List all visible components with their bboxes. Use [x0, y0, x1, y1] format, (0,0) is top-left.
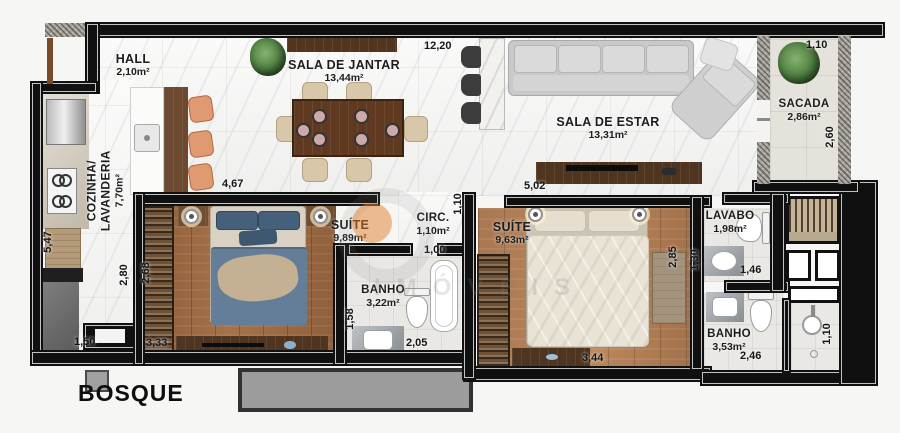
wall-bottom-b	[463, 366, 712, 382]
entrance-door	[47, 38, 53, 84]
floor-plan: IMÓVEIS HALL 2,10m² SALA DE JANTAR 13,44…	[0, 0, 900, 433]
plan-title: BOSQUE	[78, 380, 184, 407]
bar-stool	[187, 129, 214, 158]
shaft-box	[815, 250, 840, 281]
dining-table	[292, 99, 404, 157]
sacada-wall-right	[838, 36, 851, 184]
dim-banho2-bottom: 2,46	[740, 350, 761, 362]
room-label-suite1: SUÍTE 9,89m²	[318, 218, 382, 244]
laundry-counter-dark	[41, 268, 83, 282]
bathtub	[430, 260, 458, 332]
dim-suite1-bottom: 3,33	[146, 337, 167, 349]
toilet-tank	[748, 292, 774, 300]
dim-kitchen-bottom: 1,50	[74, 336, 95, 348]
dining-chair	[404, 116, 428, 142]
dim-kitchen-height: 5,47	[42, 222, 54, 262]
bar-counter-marble	[479, 38, 505, 130]
toilet-tank	[762, 212, 770, 244]
dim-suite1-depth: 2,68	[140, 253, 152, 293]
bar-chair	[461, 46, 481, 68]
dim-kitchen-inner: 2,80	[118, 255, 130, 295]
fridge	[46, 99, 86, 145]
dining-chair	[346, 158, 372, 182]
dim-suite2-bottom: 3,44	[582, 352, 603, 364]
sofa	[508, 40, 694, 96]
wardrobe	[477, 254, 510, 368]
dim-living-top: 12,20	[424, 40, 452, 52]
breakfast-bar	[164, 87, 188, 195]
dim-suite2-top: 5,02	[524, 180, 545, 192]
bar-chair	[461, 74, 481, 96]
wall-sconce	[632, 207, 647, 222]
wall-suite1-top	[133, 192, 380, 206]
dim-circ-width: 1,00	[424, 244, 445, 256]
wall-shower-left	[782, 298, 791, 373]
room-label-sala-de-jantar: SALA DE JANTAR 13,44m²	[286, 58, 402, 84]
room-label-lavabo: LAVABO 1,98m²	[698, 210, 762, 235]
island-sink	[134, 124, 160, 152]
sideboard	[287, 36, 397, 52]
wall-suite2-top	[504, 195, 712, 208]
bar-chair	[461, 102, 481, 124]
double-bed	[210, 206, 306, 324]
exterior-ledge	[238, 368, 473, 412]
dining-chair	[302, 158, 328, 182]
double-bed	[526, 204, 648, 346]
sink-counter	[704, 246, 744, 276]
door-gap	[95, 329, 125, 343]
dim-lavabo-bottom: 1,46	[740, 264, 761, 276]
dim-suite1-top: 4,67	[222, 178, 243, 190]
shower-drain	[810, 350, 818, 358]
shower-head	[802, 315, 822, 335]
duct-box	[788, 286, 840, 303]
shaft-box	[786, 250, 811, 281]
laundry-bench	[41, 282, 79, 360]
room-label-suite2: SUÍTE 9,63m²	[482, 220, 542, 246]
wall-circ-suite2	[462, 192, 476, 380]
dim-sacada-width: 1,10	[806, 39, 827, 51]
wall-banho1-top	[347, 243, 413, 256]
wall-bottom-a	[30, 350, 475, 366]
stove-cooktop	[47, 168, 77, 214]
bar-stool	[187, 162, 214, 191]
dim-suite2-depth: 2,85	[667, 237, 679, 277]
room-label-banho1: BANHO 3,22m²	[351, 284, 415, 309]
dim-sacada-depth: 2,60	[824, 117, 836, 157]
dim-banho1-depth: 1,58	[344, 299, 356, 339]
room-label-cozinha-lavanderia: COZINHA/ LAVANDERIA 7,70m²	[84, 116, 125, 266]
room-label-sala-de-estar: SALA DE ESTAR 13,31m²	[552, 115, 664, 141]
utility-grate	[786, 196, 840, 244]
dim-lavabo-depth: 1,30	[689, 240, 701, 280]
tv-console	[536, 162, 702, 184]
bar-stool	[187, 94, 214, 123]
sliding-door-gap	[757, 100, 770, 142]
dim-shower-depth: 1,10	[821, 314, 833, 354]
wall-lavabo-right	[770, 192, 786, 293]
wall-right	[839, 180, 878, 386]
room-label-hall: HALL 2,10m²	[100, 52, 166, 78]
plant	[250, 38, 286, 76]
dim-circ-depth: 1,10	[452, 184, 464, 224]
dresser	[512, 348, 590, 366]
wall-sconce	[184, 209, 199, 224]
dim-banho1-bottom: 2,05	[406, 337, 427, 349]
sink-counter	[706, 292, 744, 322]
